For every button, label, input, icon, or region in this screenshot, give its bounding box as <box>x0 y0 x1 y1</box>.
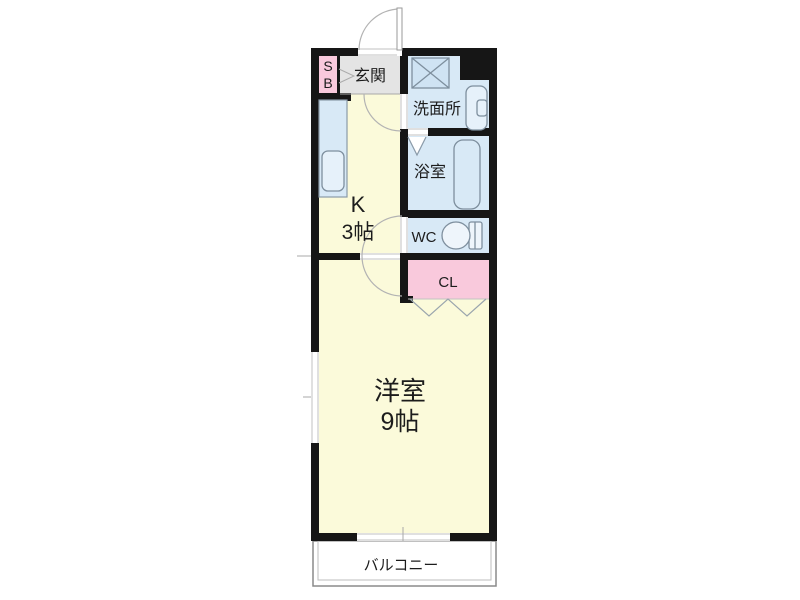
washing-machine-icon <box>412 58 449 88</box>
entrance-label: 玄関 <box>354 67 386 85</box>
kitchen-size-label: 3帖 <box>342 221 375 244</box>
kitchen-label: K <box>351 192 366 217</box>
toilet-label: WC <box>412 229 437 246</box>
shoe-box-label-s: S <box>323 58 332 74</box>
washroom-label: 洗面所 <box>413 100 461 118</box>
kitchen-sink <box>322 151 344 191</box>
washbasin-icon <box>466 86 487 130</box>
wall-bathroom-toilet <box>400 210 489 218</box>
entrance-door-leaf <box>397 8 402 50</box>
wall-left-lower <box>311 443 319 541</box>
closet-label: CL <box>438 274 457 291</box>
bathtub-icon <box>454 140 480 209</box>
wall-divider-mid <box>400 129 408 217</box>
wall-divider-top <box>400 56 408 94</box>
toilet-bowl <box>442 222 470 249</box>
wall-toilet-closet <box>400 253 489 260</box>
balcony-label: バルコニー <box>364 557 439 574</box>
wall-bottom-left <box>311 533 357 541</box>
bathroom-label: 浴室 <box>414 163 446 181</box>
toilet-icon <box>442 222 482 249</box>
toilet-door <box>400 217 408 253</box>
wall-right <box>489 48 497 541</box>
main-room-size-label: 9帖 <box>381 408 420 436</box>
main-room-label: 洋室 <box>374 376 426 406</box>
floorplan-page: S B 玄関 洗面所 浴室 WC CL K 3帖 洋室 9帖 バルコニー <box>0 0 800 600</box>
wall-shoebox-side <box>337 56 340 94</box>
floorplan-canvas: S B 玄関 洗面所 浴室 WC CL K 3帖 洋室 9帖 バルコニー <box>0 0 800 600</box>
shoe-box-label-b: B <box>323 75 332 91</box>
kitchen-counter-icon <box>319 100 347 197</box>
wall-bottom-right <box>450 533 497 541</box>
wall-kitchen-mainroom <box>311 253 360 260</box>
